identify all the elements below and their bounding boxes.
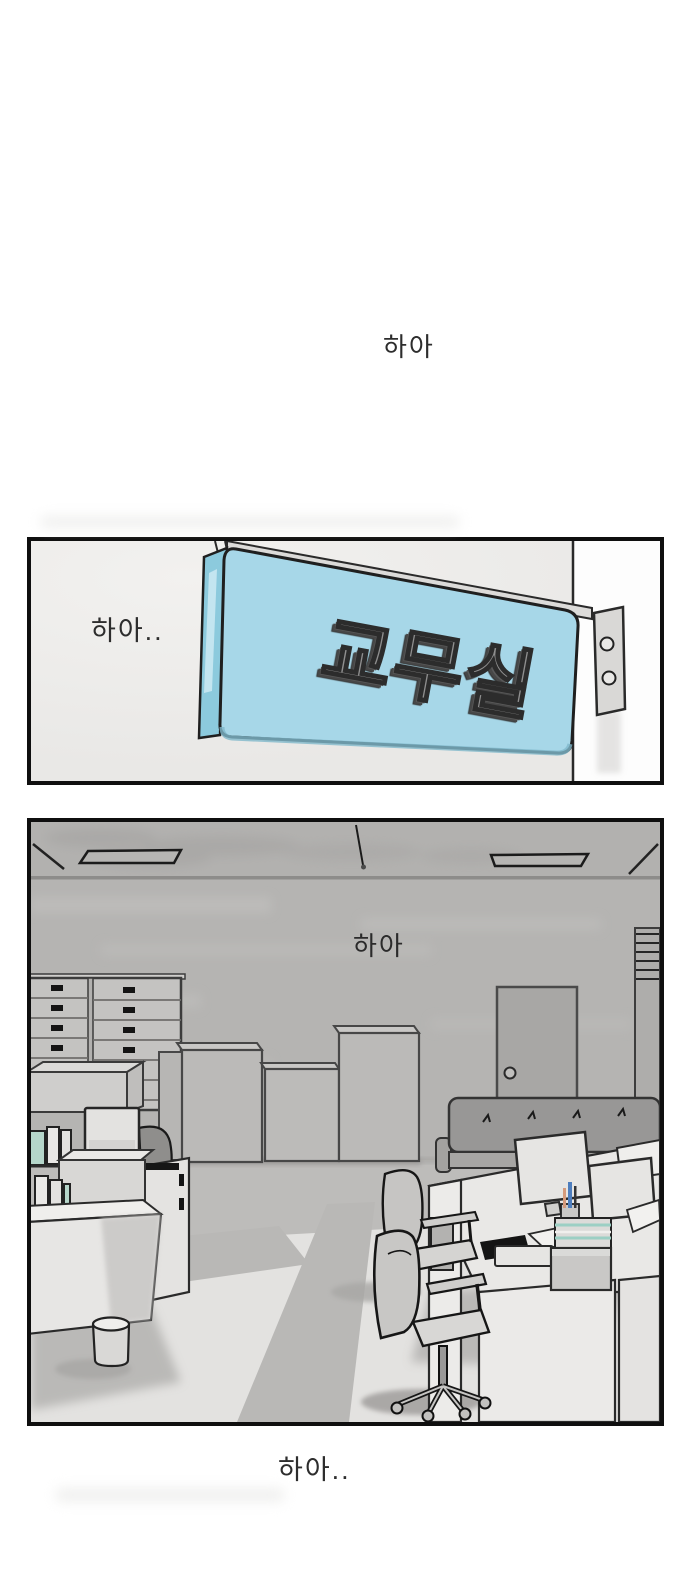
office-scene xyxy=(31,822,660,1422)
bracket-shadow-smudge xyxy=(597,711,621,773)
desk-front-panel-a xyxy=(479,1280,615,1422)
pen-blue xyxy=(568,1182,572,1208)
office-door xyxy=(497,987,577,1105)
desk-tray xyxy=(495,1246,553,1266)
pen-dark xyxy=(574,1186,577,1208)
monitor-back-1 xyxy=(515,1132,591,1204)
page-smudge-bottom xyxy=(55,1488,285,1502)
sign-bracket-plate xyxy=(594,607,625,715)
paper-stack xyxy=(555,1218,611,1248)
panel-office: 하아 xyxy=(27,818,664,1426)
bracket-bolt-top xyxy=(601,638,614,651)
sfx-top-sigh: 하아 xyxy=(383,327,435,364)
hanging-cord-tip xyxy=(361,865,366,870)
sfx-bottom-sigh: 하아.. xyxy=(278,1448,351,1487)
door-knob xyxy=(505,1068,516,1079)
ceiling-light-right xyxy=(491,854,588,866)
ceiling-wall-line xyxy=(31,876,660,880)
page-smudge-above-panel xyxy=(40,516,460,528)
sfx-panel1-sigh: 하아.. xyxy=(91,609,164,648)
bracket-bolt-bottom xyxy=(603,672,616,685)
trash-bin xyxy=(93,1318,129,1367)
pen-orange xyxy=(563,1188,566,1208)
panel-sign: 교무실 하아.. xyxy=(27,537,664,785)
sfx-panel2-sigh: 하아 xyxy=(353,926,405,963)
comic-page: 하아 xyxy=(0,0,690,1581)
desk-front-panel-b xyxy=(619,1276,660,1422)
ceiling-light-left xyxy=(80,850,181,863)
